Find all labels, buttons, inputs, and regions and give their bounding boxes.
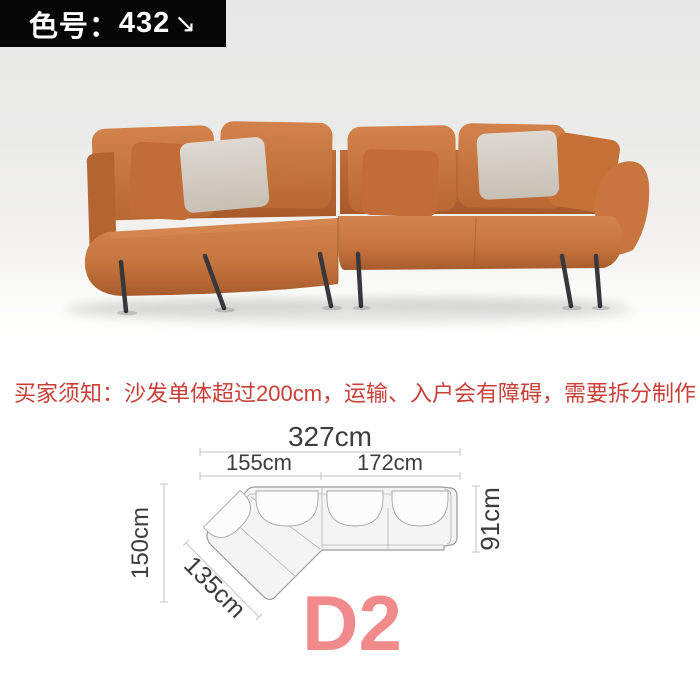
color-code-label: 色号： [29, 3, 119, 45]
product-image: 色号：432↘ [0, 0, 700, 700]
product-photo: 色号：432↘ [0, 0, 700, 352]
sofa-front-pillow [361, 149, 439, 218]
dim-total-width: 327cm [288, 421, 372, 452]
sofa-illustration [0, 0, 700, 352]
dim-left-depth: 150cm [127, 507, 154, 579]
buyer-notice-text: 买家须知：沙发单体超过200cm，运输、入户会有障碍，需要拆分制作 [14, 379, 694, 409]
sofa-gray-pillow [476, 130, 559, 200]
dim-right-section: 172cm [357, 450, 423, 475]
color-code-value: 432 [119, 7, 170, 40]
dim-left-section: 155cm [226, 450, 292, 475]
dimension-diagram: 327cm 155cm 172cm 150cm 135cm 91cm [0, 410, 700, 700]
sofa-gray-pillow [179, 136, 270, 213]
sofa-right-seat [338, 216, 622, 270]
dim-right-depth: 91cm [475, 487, 505, 551]
arrow-down-right-icon: ↘ [174, 8, 197, 39]
sofa-floor-shadow [65, 297, 635, 324]
color-code-badge: 色号：432↘ [0, 0, 226, 47]
model-label: D2 [302, 579, 402, 667]
